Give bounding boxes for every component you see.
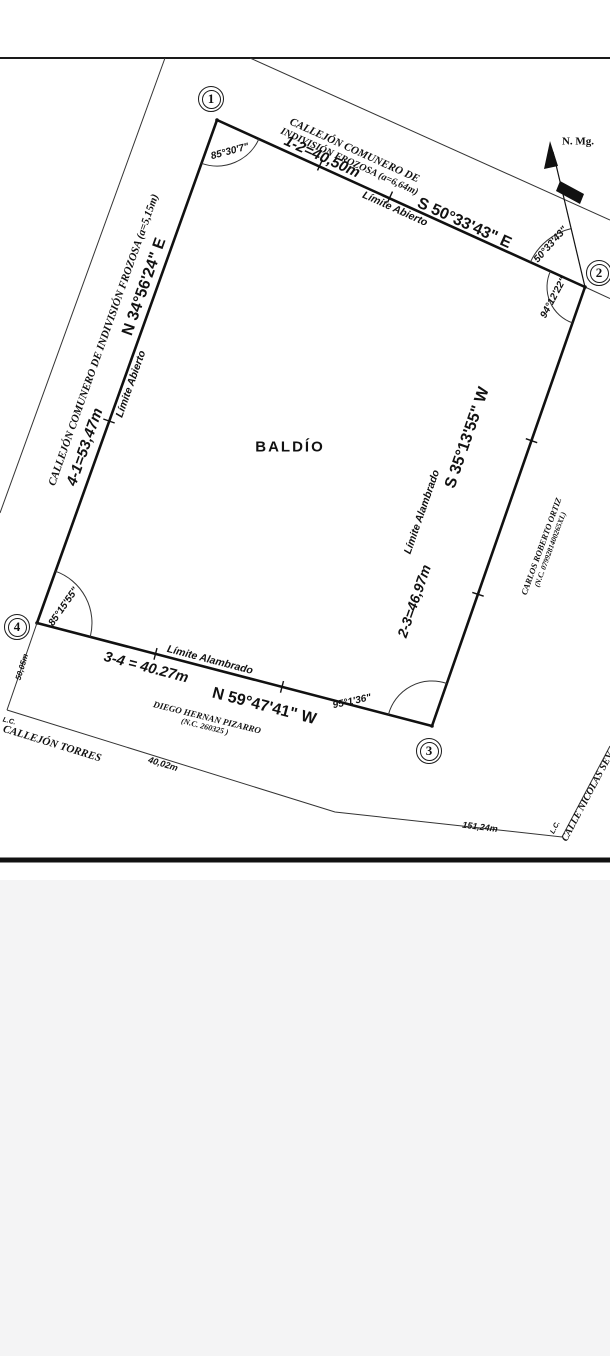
vertex-3-marker: 3 bbox=[416, 738, 442, 764]
vertex-2-number: 2 bbox=[596, 265, 603, 281]
north-label: N. Mg. bbox=[562, 136, 594, 149]
vertex-1-number: 1 bbox=[208, 91, 215, 107]
survey-plan-page: CALLEJÓN COMUNERO DE INDIVISIÓN FROZOSA … bbox=[0, 0, 610, 1356]
vertex-2-marker: 2 bbox=[586, 260, 610, 286]
survey-plan-drawing: CALLEJÓN COMUNERO DE INDIVISIÓN FROZOSA … bbox=[0, 0, 610, 880]
footer-band: INMOBILIARIA STEVANATO bbox=[0, 880, 610, 1356]
parcel-label-baldio: BALDÍO bbox=[255, 438, 325, 455]
vertex-3-number: 3 bbox=[426, 743, 433, 759]
vertex-1-marker: 1 bbox=[198, 86, 224, 112]
vertex-4-marker: 4 bbox=[4, 614, 30, 640]
vertex-4-number: 4 bbox=[14, 619, 21, 635]
north-arrow bbox=[544, 141, 585, 287]
